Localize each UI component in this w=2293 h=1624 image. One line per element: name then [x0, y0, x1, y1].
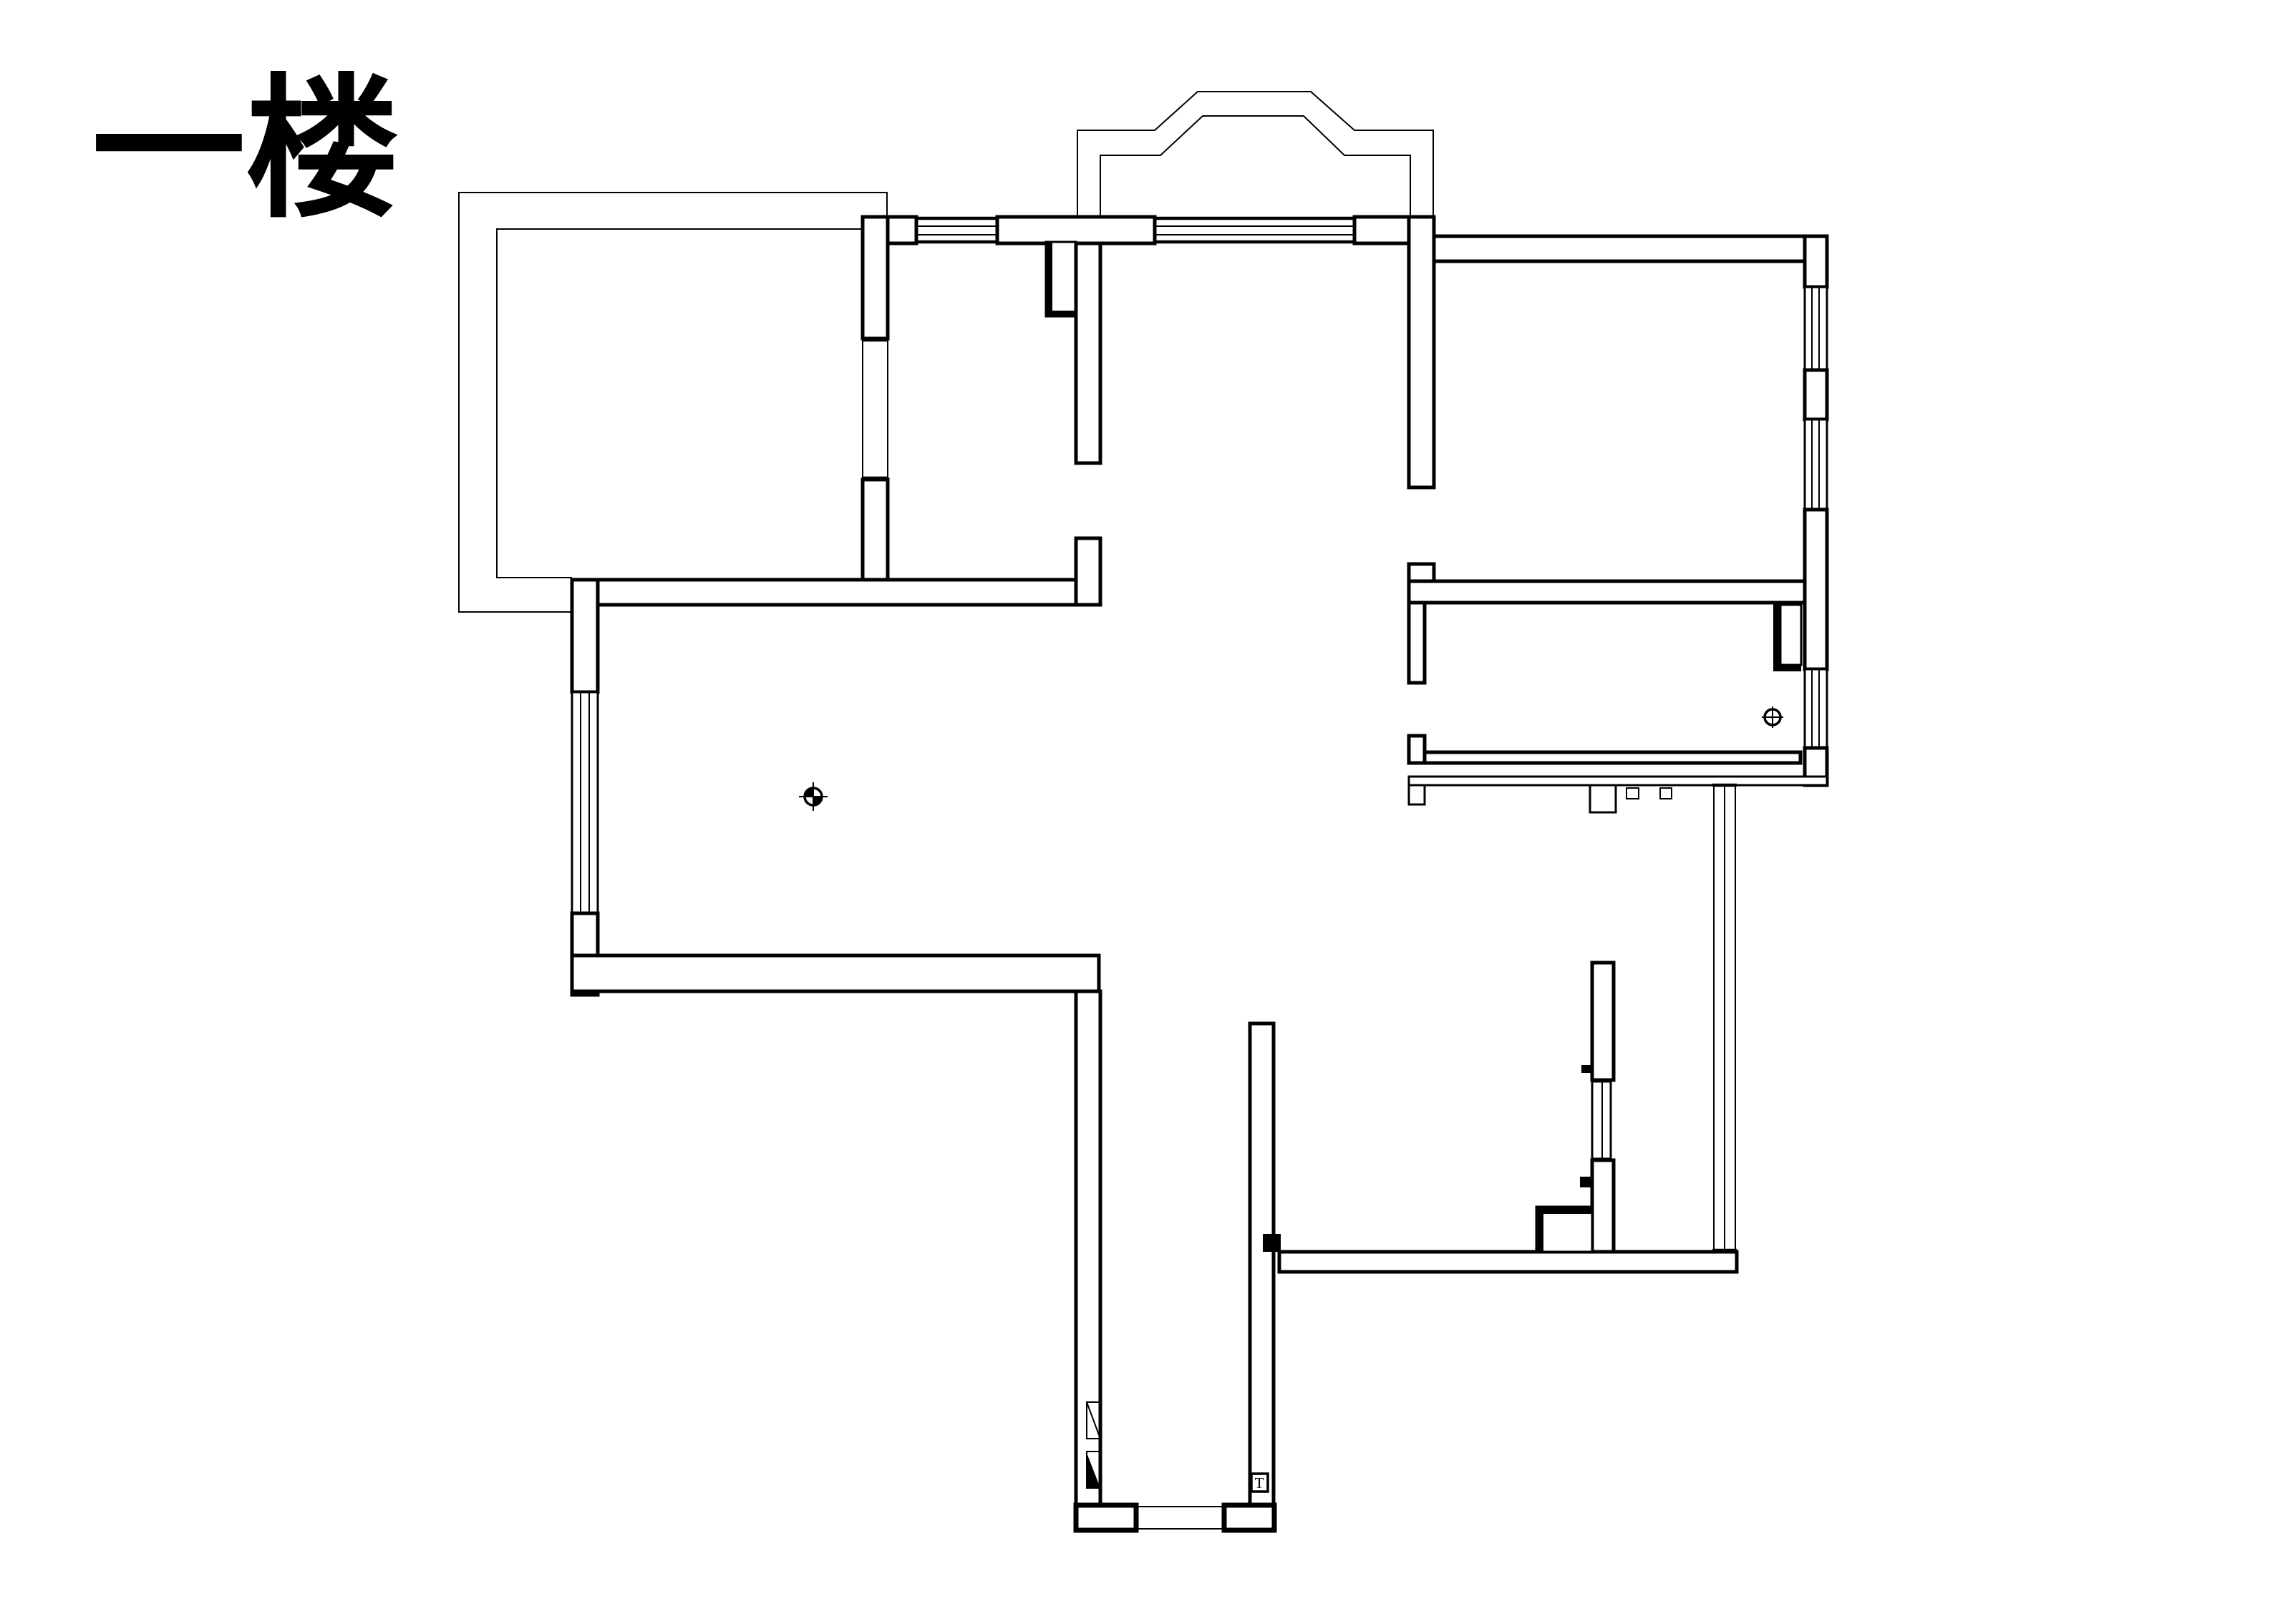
living-room-walls [572, 580, 1099, 995]
floor-title: 一楼 [92, 63, 399, 235]
flue-pilaster [1046, 242, 1052, 316]
floor-plan-page: 一楼 [0, 0, 2293, 1624]
east-window-2 [1805, 419, 1827, 510]
balcony-outline [459, 193, 887, 612]
floor-plan-drawing: 一楼 [0, 0, 2293, 1624]
north-wall [863, 217, 1434, 243]
door-track-stop [1627, 788, 1639, 799]
west-window [572, 692, 598, 913]
kitchen-east-window [1712, 785, 1737, 1252]
entry-jamb-right [1224, 1505, 1274, 1530]
dining-room-walls [1409, 603, 1827, 812]
east-window-1 [1805, 287, 1827, 370]
circled-cross-icon [1762, 706, 1783, 728]
bedroom1-east-wall [1046, 242, 1100, 605]
bedroom1-west-wall [863, 217, 888, 581]
east-window-3 [1805, 669, 1827, 748]
door-leaf [1780, 605, 1801, 665]
entry-jamb-left [1076, 1505, 1136, 1530]
kitchen-walls [1279, 785, 1737, 1272]
quadrant-crosshair-icon [799, 782, 828, 811]
entry-corridor: T [1076, 991, 1281, 1530]
entry-marker-label: T [1255, 1474, 1264, 1492]
bedroom2-walls [1409, 217, 1827, 683]
door-track-stop [1660, 788, 1672, 799]
